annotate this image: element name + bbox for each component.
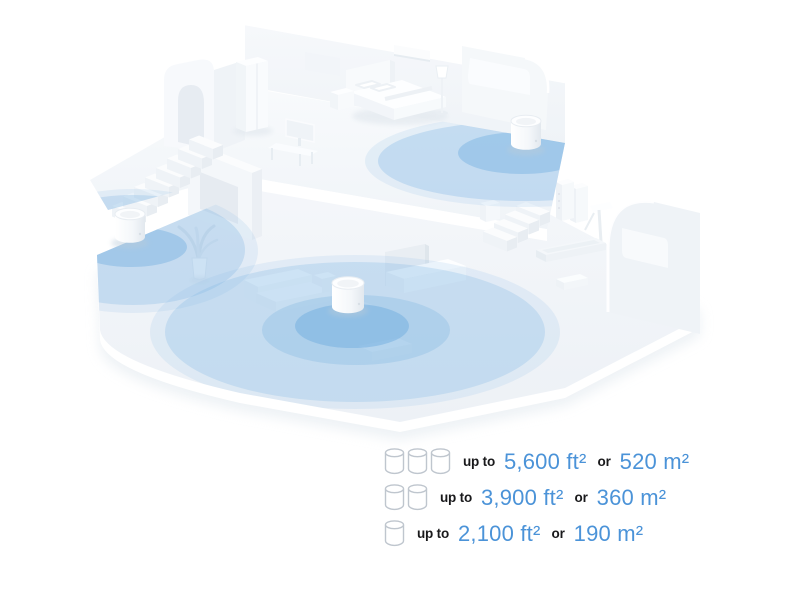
coverage-sqft-value: 2,100 ft² [458,521,541,547]
coverage-sqft-value: 5,600 ft² [504,449,587,475]
mesh-unit-icon [384,484,405,511]
coverage-sqft-value: 3,900 ft² [481,485,564,511]
mesh-unit-upstairs [507,115,545,155]
wardrobe [233,57,273,136]
speakers [556,179,588,223]
coverage-sqm-value: 520 m² [620,449,690,475]
upto-label: up to [440,490,472,505]
mesh-unit-livingroom [328,277,368,317]
garage-arch-wall [608,201,700,334]
upto-label: up to [417,526,449,541]
mesh-unit-left [111,208,149,248]
mesh-unit-icon [430,448,451,475]
coverage-row-3-units: up to 5,600 ft² or 520 m² [384,447,689,476]
or-label: or [552,526,565,541]
marketing-image: up to 5,600 ft² or 520 m² up to 3,900 ft… [0,0,800,600]
nightstand [330,88,354,110]
mesh-unit-icon [384,448,405,475]
coverage-sqm-value: 360 m² [597,485,667,511]
coverage-sqm-value: 190 m² [574,521,644,547]
mesh-unit-icon [407,484,428,511]
coverage-row-2-units: up to 3,900 ft² or 360 m² [384,483,689,512]
mesh-unit-icon [407,448,428,475]
unit-count-icons [384,448,451,475]
or-label: or [598,454,611,469]
mesh-unit-icon [384,520,405,547]
or-label: or [575,490,588,505]
upto-label: up to [463,454,495,469]
coverage-row-1-unit: up to 2,100 ft² or 190 m² [384,519,689,548]
coverage-legend: up to 5,600 ft² or 520 m² up to 3,900 ft… [384,447,689,548]
unit-count-icons [384,484,428,511]
unit-count-icons [384,520,405,547]
